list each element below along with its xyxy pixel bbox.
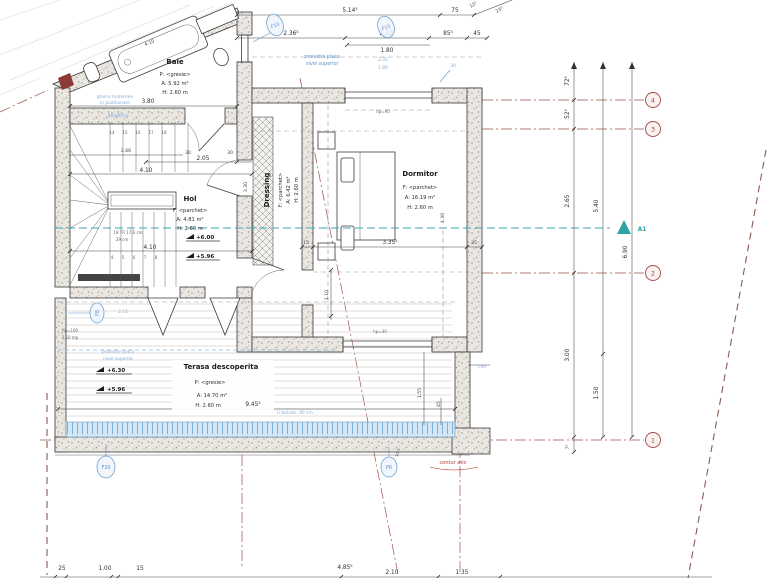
slab-terasa-1: proiectie placa <box>102 349 135 355</box>
svg-text:2: 2 <box>651 270 655 278</box>
level-marker-terasa-1 <box>96 367 104 372</box>
dim-3355: 3.35⁵ <box>382 239 398 246</box>
baie-height: H: 2.60 m <box>162 90 188 96</box>
wall-baie-bottom-b <box>225 108 237 124</box>
dim-9455: 9.45⁵ <box>245 401 261 408</box>
dim-r-265: 2.65 <box>565 194 571 207</box>
svg-text:F20: F20 <box>102 465 111 471</box>
boundary-topleft <box>0 90 48 112</box>
dim-arrows <box>571 62 635 69</box>
section-triangle <box>617 220 631 234</box>
window-tag-f15: F15 <box>375 14 398 40</box>
dim-430: 4.30 <box>440 213 446 223</box>
grid-marker-3: 3 <box>646 122 661 137</box>
door-baie-arc <box>188 124 199 151</box>
blue-dim-215: 2.15 <box>118 309 128 315</box>
stair-num: 6 <box>133 255 136 260</box>
parapet-bottom <box>55 437 470 452</box>
dim-r-725: 72⁵ <box>564 75 571 85</box>
dressing-height: H: 2.60 m <box>294 177 300 203</box>
terasa-height: H: 2.60 m <box>195 403 221 409</box>
dim-155: 1.55 <box>417 388 423 398</box>
dressing-area: A: 6.42 m² <box>286 176 292 203</box>
parapet-left <box>55 298 66 452</box>
wall-left <box>55 88 70 287</box>
wall-hol-bottom-a <box>70 287 148 298</box>
door-terasa-leaf-1 <box>148 298 178 335</box>
svg-text:F8: F8 <box>95 310 101 316</box>
floor-plan-canvas: 5.14⁵ 75 12⁵ 23⁵ 2.36⁵ 2.32 1.80 85⁵ 45 … <box>0 0 770 578</box>
dim-r-150: 1.50 <box>594 386 600 399</box>
mp-label: 2.50 mp <box>62 335 79 340</box>
grid-marker-2: 2 <box>646 266 661 281</box>
stair-num: 7 <box>144 255 147 260</box>
blue-leader-30: 30 <box>450 63 456 69</box>
window-tag-f10: F10 <box>253 12 286 42</box>
svg-text:3: 3 <box>651 126 655 134</box>
stair-num: 8 <box>155 255 158 260</box>
wall-top-a <box>252 88 345 103</box>
stair-winder-fan <box>70 126 110 285</box>
staircase <box>70 122 188 287</box>
contur-atic-label: contur atic <box>440 460 467 466</box>
ghena-label-3: 80x80cm <box>108 113 128 119</box>
hp30-label: hp=30 <box>373 329 387 334</box>
wall-spine-2 <box>237 62 252 160</box>
dim-35: 35 <box>471 240 477 246</box>
hol-finish: F: <parchet> <box>173 208 208 214</box>
contur-atic-underline <box>430 467 478 470</box>
stair-note-1: 18 TR 17,6 cm <box>113 230 142 235</box>
dim-r-75: 7⁵ <box>565 444 571 449</box>
baie-area: A: 5.92 m² <box>161 81 188 87</box>
nightstand-2 <box>318 243 335 260</box>
wall-hol-bottom-c <box>237 287 252 298</box>
hp90-label: hp=90 <box>376 109 390 114</box>
grid-marker-4: 4 <box>646 93 661 108</box>
stair-num: 16 <box>135 130 141 135</box>
window-f15 <box>345 88 432 103</box>
dim-410a: 4.10 <box>140 168 153 174</box>
bathtub <box>108 15 209 83</box>
baie-finish: P: <gresie> <box>159 72 190 78</box>
terasa-finish: P: <gresie> <box>194 380 225 386</box>
dormitor-finish: F: <parchet> <box>403 185 438 191</box>
slab-projection-label-1: proiectie placa <box>304 54 339 60</box>
threshold <box>78 274 140 281</box>
slab-terasa-2: nivel superior <box>103 356 133 362</box>
dim-top-855: 85⁵ <box>443 30 453 37</box>
section-label-a1: A1 <box>638 226 647 233</box>
dim-r-300: 3.00 <box>565 348 571 361</box>
stair-rail-outer <box>108 192 176 209</box>
wall-hol-bottom-b <box>180 287 205 298</box>
dressing-name: Dressing <box>263 173 271 208</box>
dormitor-area: A: 16.19 m² <box>405 195 436 201</box>
wall-spine-4 <box>237 292 252 352</box>
dim-410b: 4.10 <box>144 245 157 251</box>
dim-r-690: 6.90 <box>623 245 629 258</box>
door-baie-leaf <box>199 124 224 151</box>
blue-leader-line <box>440 70 450 82</box>
sink <box>211 46 231 68</box>
dormitor-height: H: 2.60 m <box>407 205 433 211</box>
dim-205: 2.05 <box>197 156 210 162</box>
dim-b-4855: 4.85⁵ <box>337 564 353 571</box>
level-marker-hol-1 <box>186 234 194 239</box>
dim-top-235: 23⁵ <box>495 6 505 15</box>
dim-b-135: 1.35 <box>456 570 469 576</box>
stair-num: 15 <box>122 130 128 135</box>
dim-b-100: 1.00 <box>99 566 112 572</box>
dim-15: 15 <box>303 240 309 246</box>
stair-num: 14 <box>109 130 115 135</box>
dim-top-180: 1.80 <box>381 48 394 54</box>
svg-text:P6: P6 <box>386 465 392 471</box>
dim-45r: 45 <box>436 401 442 407</box>
wall-bed-bottom-b <box>432 337 467 352</box>
dim-top-45: 45 <box>473 31 481 37</box>
ghena-label-2: in pozitionare <box>100 100 130 106</box>
wall-spine-1 <box>237 12 252 35</box>
terasa-area: A: 14.70 m² <box>197 393 228 399</box>
bed-pillow-2 <box>341 226 354 250</box>
dim-105: 10,5 <box>394 447 401 457</box>
floor-plan-svg: 5.14⁵ 75 12⁵ 23⁵ 2.36⁵ 2.32 1.80 85⁵ 45 … <box>0 0 770 578</box>
glass-balustrade <box>66 422 455 437</box>
dim-top-12: 12⁵ <box>469 1 479 10</box>
dim-380: 3.80 <box>142 99 155 105</box>
ghena-label-1: ghena materiale <box>97 94 133 100</box>
dim-top-514: 5.14⁵ <box>342 7 358 14</box>
wall-right <box>467 88 482 352</box>
ihe-label: i.he <box>478 364 486 370</box>
boundary-right-diagonal <box>688 150 766 578</box>
dim-b-15: 15 <box>136 566 144 572</box>
hol-level-lower: +5.96 <box>196 254 214 260</box>
window-f10 <box>237 35 252 62</box>
parapet-corner-detail <box>452 428 490 454</box>
svg-text:4: 4 <box>651 97 655 105</box>
hol-name: Hol <box>183 195 196 203</box>
hol-height: H: 2.60 m <box>177 226 203 232</box>
parapet-right <box>455 352 470 437</box>
stair-note-2: 29 cm <box>116 237 129 242</box>
dim-30a: 30 <box>185 150 191 156</box>
grid-marker-1: 1 <box>646 433 661 448</box>
hp100-label: hp=100 <box>62 328 79 333</box>
terasa-level-lower: +5.96 <box>107 387 125 393</box>
dim-r-540: 5.40 <box>594 199 600 212</box>
terasa-name: Terasa descoperita <box>184 363 259 371</box>
stair-num: 4 <box>111 255 114 260</box>
dim-top-75: 75 <box>451 8 459 14</box>
blue-dim-232: 2.32 <box>378 57 388 63</box>
dressing-finish: F: <parchet> <box>278 173 284 208</box>
blue-dim-180: 1.80 <box>378 65 388 71</box>
wall-dressing-b <box>302 305 313 337</box>
stair-num: 17 <box>148 130 154 135</box>
level-marker-hol-2 <box>186 253 194 258</box>
door-dormitor-arc <box>252 270 284 292</box>
dim-b-210: 2.10 <box>386 570 399 576</box>
bed-pillow-1 <box>341 158 354 182</box>
baie-name: Baie <box>166 58 183 66</box>
dim-110: 1.10 <box>324 290 330 300</box>
window-tag-f8: F8 <box>68 303 104 323</box>
dim-330: 3.30 <box>243 182 249 192</box>
dim-b-25: 25 <box>58 566 66 572</box>
door-hol-leaf <box>207 185 240 196</box>
stair-num: 5 <box>122 255 125 260</box>
stair-num: 18 <box>161 130 167 135</box>
svg-text:1: 1 <box>651 437 655 445</box>
dormitor-name: Dormitor <box>402 170 438 178</box>
nightstand-1 <box>318 132 335 149</box>
level-marker-terasa-2 <box>96 386 104 391</box>
door-terasa-leaf-2 <box>210 298 240 335</box>
slab-projection-label-2: nivel superior <box>306 61 339 67</box>
dim-30b: 30 <box>227 150 233 156</box>
balustrade-label: h balustr. 90 cm <box>277 410 313 416</box>
terasa-level-upper: +6.30 <box>107 368 125 374</box>
dim-266: 2.66 <box>121 148 131 154</box>
hol-area: A: 4.81 m² <box>176 217 203 223</box>
dim-r-525: 52⁵ <box>564 108 571 118</box>
wall-spine-3 <box>237 196 252 258</box>
hol-level-upper: +6.00 <box>196 235 214 241</box>
dim-top-2365: 2.36⁵ <box>283 30 299 37</box>
